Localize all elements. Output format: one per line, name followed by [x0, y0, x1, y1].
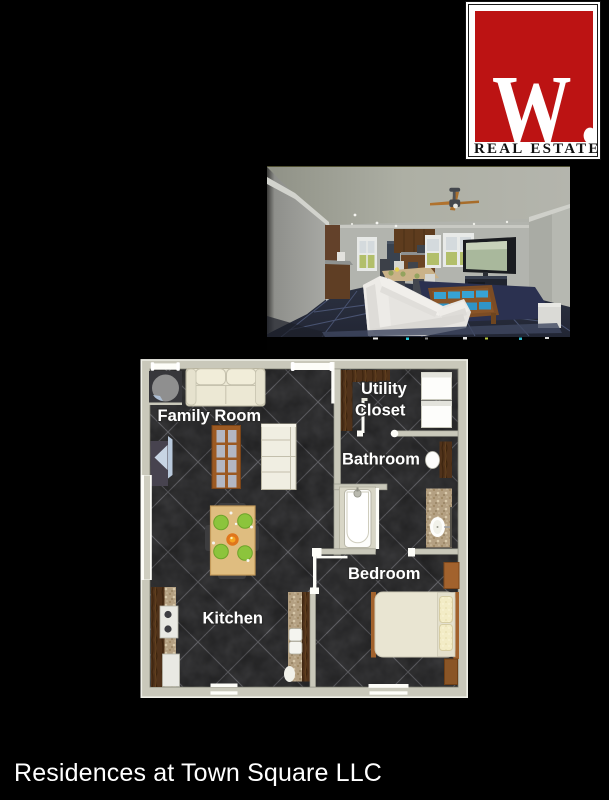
svg-text:Family Room: Family Room: [158, 407, 262, 425]
svg-text:Bathroom: Bathroom: [342, 451, 420, 469]
svg-text:Closet: Closet: [355, 402, 406, 420]
svg-text:Bedroom: Bedroom: [348, 565, 420, 583]
svg-text:Utility: Utility: [361, 380, 408, 398]
svg-text:Kitchen: Kitchen: [203, 610, 264, 628]
